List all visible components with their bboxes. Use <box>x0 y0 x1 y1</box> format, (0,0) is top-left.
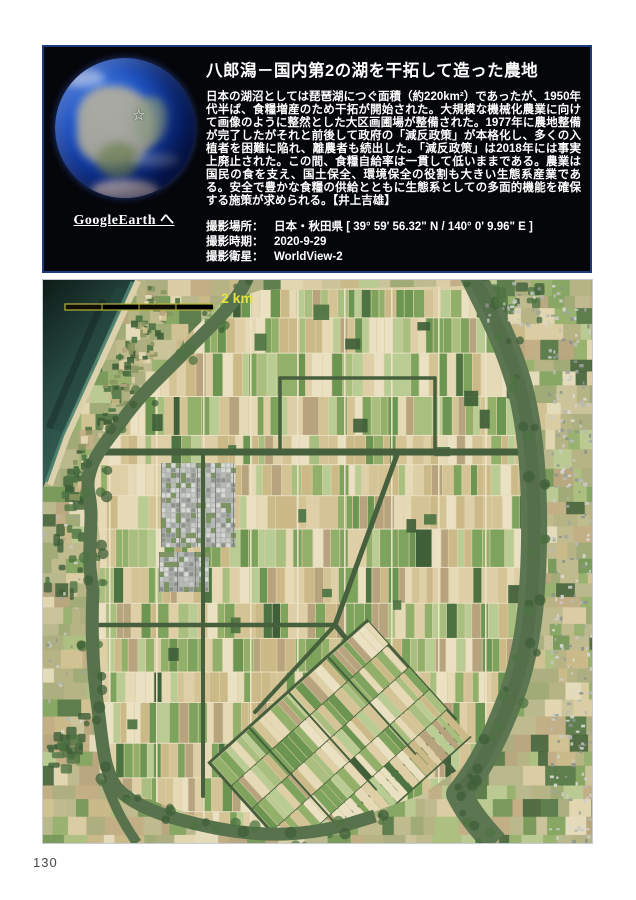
google-earth-link[interactable]: GoogleEarth へ <box>44 209 204 229</box>
page-number: 130 <box>33 855 58 870</box>
meta-row-satellite: 撮影衛星： WorldView-2 <box>206 250 581 265</box>
scale-bar-label: 2 km <box>221 290 253 306</box>
globe-shading <box>55 58 195 198</box>
meta-label: 撮影場所： <box>206 220 270 235</box>
meta-row-date: 撮影時期： 2020-9-29 <box>206 235 581 250</box>
satellite-generated-terrain <box>43 280 592 843</box>
satellite-image: 2 km <box>43 280 592 843</box>
meta-row-location: 撮影場所： 日本・秋田県 [ 39° 59' 56.32" N / 140° 0… <box>206 220 581 235</box>
header-panel: ☆ GoogleEarth へ 八郎潟－国内第2の湖を干拓して造った農地 日本の… <box>42 45 592 273</box>
meta-label: 撮影衛星： <box>206 250 270 265</box>
globe-column: ☆ GoogleEarth へ <box>44 47 204 271</box>
satellite-map-svg: 2 km <box>43 280 592 843</box>
globe-image: ☆ <box>55 58 195 198</box>
scale-bar-segment <box>176 305 213 309</box>
meta-label: 撮影時期： <box>206 235 270 250</box>
meta-value: 2020-9-29 <box>274 235 326 250</box>
meta-value: 日本・秋田県 [ 39° 59' 56.32" N / 140° 0' 9.96… <box>274 220 533 235</box>
page-title: 八郎潟－国内第2の湖を干拓して造った農地 <box>206 57 581 81</box>
scale-bar-segment <box>102 305 139 309</box>
header-text-column: 八郎潟－国内第2の湖を干拓して造った農地 日本の湖沼としては琵琶湖につぐ面積（約… <box>204 47 590 271</box>
capture-metadata: 撮影場所： 日本・秋田県 [ 39° 59' 56.32" N / 140° 0… <box>206 220 581 265</box>
location-star-icon: ☆ <box>132 108 145 123</box>
description-text: 日本の湖沼としては琵琶湖につぐ面積（約220km²）であったが、1950年代半ば… <box>206 91 581 208</box>
meta-value: WorldView-2 <box>274 250 343 265</box>
